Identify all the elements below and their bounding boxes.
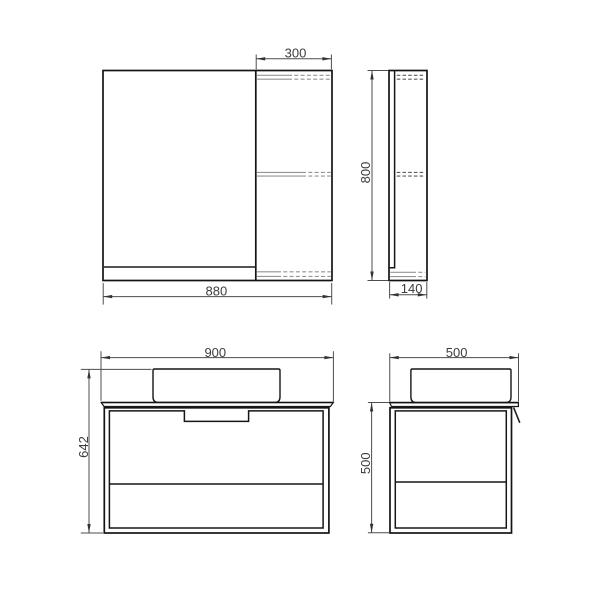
svg-text:642: 642 (76, 436, 91, 458)
svg-text:800: 800 (358, 162, 373, 184)
svg-text:500: 500 (358, 452, 373, 474)
svg-text:300: 300 (285, 46, 307, 61)
svg-text:140: 140 (401, 281, 423, 296)
svg-text:500: 500 (446, 345, 468, 360)
svg-text:880: 880 (206, 283, 228, 298)
svg-text:900: 900 (204, 345, 226, 360)
